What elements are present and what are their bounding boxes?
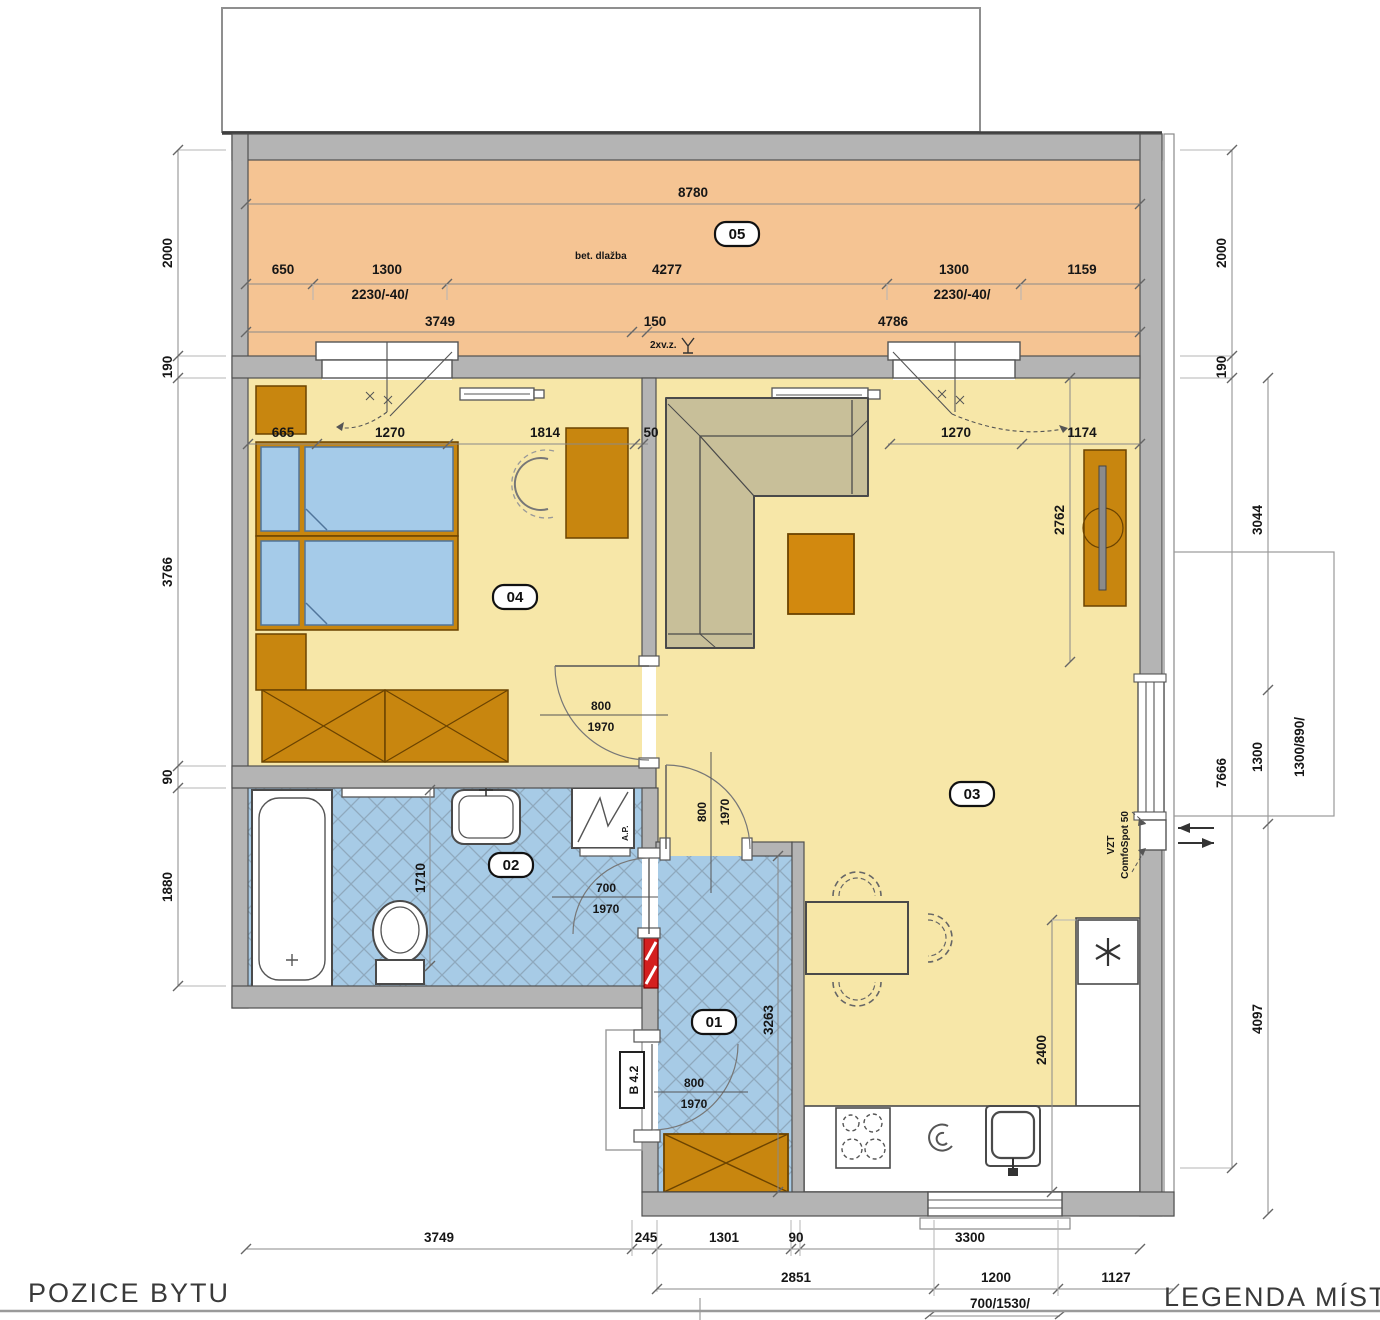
dim-room-1174: 1174 (1067, 425, 1097, 440)
wall-bath-bottom (232, 986, 656, 1008)
dim-rightinner-4097: 4097 (1250, 1004, 1265, 1034)
dim-rightinner-1300: 1300 (1250, 742, 1265, 772)
dim-left-190: 190 (160, 356, 175, 379)
dim-kitchen-run: 2400 (1034, 1035, 1049, 1065)
floorplan-drawing: A.P. (0, 0, 1380, 1320)
dim-bottom-1127: 1127 (1101, 1270, 1130, 1285)
legend-title: LEGENDA MÍSTN (1164, 1282, 1380, 1312)
dim-bottom-1200: 1200 (981, 1270, 1011, 1285)
tv-unit (1083, 450, 1126, 606)
dim-room-665: 665 (272, 425, 295, 440)
right-window (1134, 674, 1166, 820)
wall-bed-living (642, 378, 656, 666)
dim-rightinner-3044: 3044 (1250, 504, 1265, 535)
wall-bottom-b (1062, 1192, 1174, 1216)
dim-bath-width: 1710 (413, 863, 428, 893)
dim-room-1270r: 1270 (941, 425, 971, 440)
coffee-table (788, 534, 854, 614)
cooktop (836, 1108, 890, 1168)
dim-left-1880: 1880 (160, 872, 175, 902)
door-hallliv-w: 800 (695, 802, 709, 822)
dim-bottom-3300: 3300 (955, 1230, 985, 1245)
dim-chain-left (173, 145, 226, 991)
dim-room-1814: 1814 (530, 425, 561, 440)
wardrobe-left (262, 690, 385, 762)
dim-balcony-1300l: 1300 (372, 262, 402, 277)
washer-label: A.P. (620, 826, 630, 841)
fridge (1078, 920, 1138, 984)
dresser (256, 634, 306, 690)
dim-window-right: 2230/-40/ (933, 287, 990, 302)
entry-tag-label: B 4.2 (627, 1065, 641, 1094)
dim-right-window-size: 1300/890/ (1292, 717, 1307, 777)
dim-left-90: 90 (160, 769, 175, 784)
wall-hall-left-a (642, 986, 658, 1036)
badge-02-label: 02 (503, 857, 520, 874)
washbasin (452, 784, 520, 844)
riser-shaft (644, 930, 658, 988)
door-livbed-h: 1970 (588, 720, 615, 734)
hall-wardrobe (664, 1134, 788, 1192)
dim-left-3766: 3766 (160, 556, 175, 587)
dim-rightouter-2000: 2000 (1214, 238, 1229, 268)
wall-hall-top-b (748, 842, 792, 856)
bedroom-radiator (460, 388, 544, 400)
dim-window-left: 2230/-40/ (351, 287, 408, 302)
dim-room-50: 50 (643, 425, 658, 440)
right-window-bracket (1174, 552, 1334, 816)
dim-rightouter-7666: 7666 (1214, 757, 1229, 788)
dim-balcony-150: 150 (644, 314, 667, 329)
door-entry-w: 800 (684, 1076, 704, 1090)
wall-left (232, 134, 248, 1008)
dim-balcony-total: 8780 (678, 185, 708, 200)
position-title: POZICE BYTU (28, 1278, 230, 1308)
dim-left-2000: 2000 (160, 238, 175, 268)
badge-04-label: 04 (507, 589, 524, 606)
wall-top (232, 134, 1162, 160)
dim-balcony-4786: 4786 (878, 314, 909, 329)
dim-balcony-3749: 3749 (425, 314, 455, 329)
dim-chain-right-inner (1263, 373, 1273, 1219)
wardrobe-right (385, 690, 508, 762)
drain-note: 2xv.z. (650, 340, 677, 351)
door-entry-h: 1970 (681, 1097, 708, 1111)
dining-table (806, 902, 908, 974)
kitchen-sink (986, 1106, 1040, 1176)
wall-hall-left-b (642, 1134, 658, 1192)
washing-machine: A.P. (572, 788, 634, 856)
dim-balcony-1300r: 1300 (939, 262, 969, 277)
vzt-label-1: VZT (1106, 836, 1117, 855)
balcony-surface-note: bet. dlažba (575, 251, 627, 262)
dim-rightouter-190: 190 (1214, 356, 1229, 379)
dim-hall-depth: 3263 (761, 1004, 776, 1035)
dim-bottom-90: 90 (788, 1230, 803, 1245)
dim-balcony-1159: 1159 (1067, 262, 1096, 277)
door-livbed-w: 800 (591, 699, 611, 713)
floorplan-page: A.P. (0, 0, 1380, 1320)
dim-bottom-window: 700/1530/ (970, 1296, 1030, 1311)
dim-bottom-3749: 3749 (424, 1230, 454, 1245)
wall-hall-living (792, 842, 804, 1192)
badge-03-label: 03 (964, 786, 981, 803)
dim-balcony-650: 650 (272, 262, 295, 277)
dim-bottom-245: 245 (635, 1230, 658, 1245)
dim-room-1270l: 1270 (375, 425, 405, 440)
bottom-window (920, 1192, 1070, 1229)
dim-chain-right-outer (1180, 145, 1237, 1173)
bathtub (252, 790, 332, 990)
dim-balcony-4277: 4277 (652, 262, 682, 277)
vzt-label-2: ComfoSpot 50 (1120, 811, 1131, 879)
bed-double (256, 442, 458, 630)
wall-bed-bath (232, 766, 656, 788)
door-bath-w: 700 (596, 881, 616, 895)
dim-bottom-1301: 1301 (709, 1230, 740, 1245)
upper-floor-outline (222, 8, 1162, 133)
door-bath-h: 1970 (593, 902, 620, 916)
badge-01-label: 01 (706, 1014, 723, 1031)
dim-living-depth: 2762 (1052, 505, 1067, 535)
dim-bottom-2851: 2851 (781, 1270, 812, 1285)
door-hallliv-h: 1970 (718, 798, 732, 825)
wall-bottom-a (642, 1192, 928, 1216)
badge-05-label: 05 (729, 226, 746, 243)
